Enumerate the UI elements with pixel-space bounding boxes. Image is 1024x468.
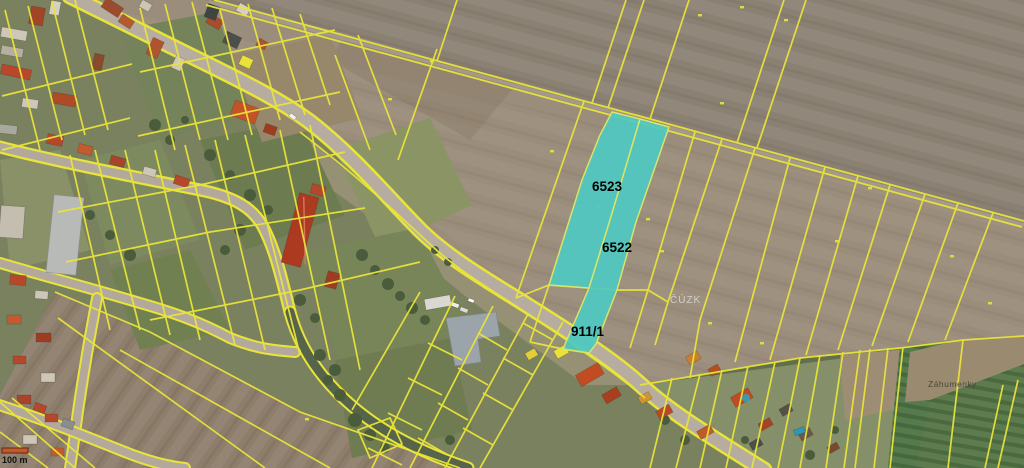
map-viewport[interactable]: 6523 6522 911/1 Záhumenky ČÚZK 100 m [0,0,1024,468]
cadastral-map[interactable]: 6523 6522 911/1 Záhumenky ČÚZK 100 m [0,0,1024,468]
cuzk-watermark: ČÚZK [670,293,701,306]
scale-bar: 100 m [2,448,28,465]
parcel-label-6522: 6522 [602,240,632,255]
parcel-label-911-1: 911/1 [571,324,605,339]
scale-bar-rect [2,448,28,453]
terrain-layer [0,0,1024,468]
place-label-zahumenky: Záhumenky [928,379,977,389]
parcel-label-6523: 6523 [592,179,623,194]
scale-bar-label: 100 m [2,455,28,465]
